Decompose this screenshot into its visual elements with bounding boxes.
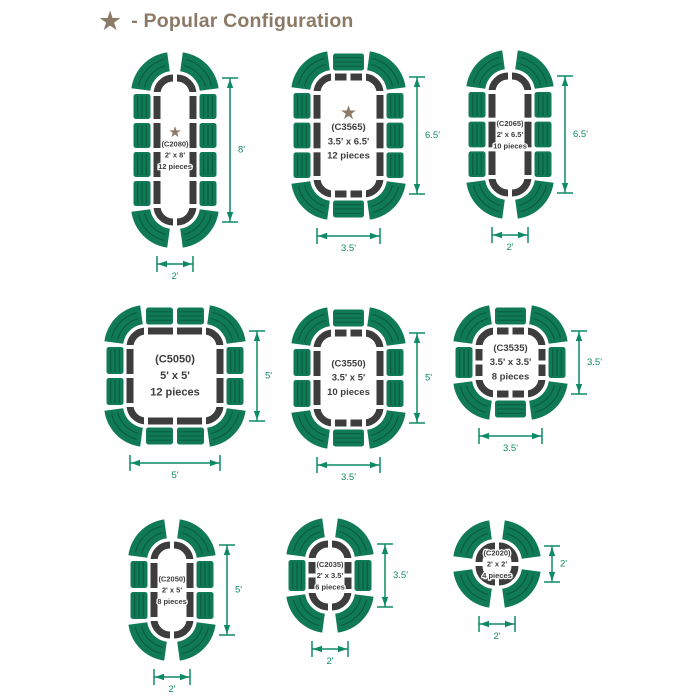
config-size: 2' x 6.5' <box>497 130 524 139</box>
arrowhead-icon <box>413 78 419 87</box>
table-segment-gap <box>173 326 177 337</box>
table-segment-gap <box>202 326 206 337</box>
height-dimension-label: 6.5' <box>425 130 440 141</box>
table-segment-gap <box>170 540 174 551</box>
arrowhead-icon <box>254 411 260 420</box>
config-size: 3.5' x 6.5' <box>327 136 369 147</box>
width-dimension-label: 2' <box>506 242 513 253</box>
table-segment-gap <box>346 418 350 429</box>
table-segment-gap <box>493 388 497 399</box>
table-segment-gap <box>185 617 196 621</box>
table-segment-gap <box>188 204 199 208</box>
popular-configuration-sheet: ★ - Popular Configuration ★(C2080)2' x 8… <box>0 0 700 700</box>
table-segment-gap <box>524 325 528 336</box>
table-segment-gap <box>343 558 354 562</box>
table-segment-gap <box>362 188 366 199</box>
table-segment-gap <box>311 148 322 152</box>
arrowhead-icon <box>318 462 327 468</box>
configuration-C3550: (C3550)3.5' x 5'10 pieces5'3.5' <box>267 283 450 489</box>
config-id: (C2065) <box>496 118 524 127</box>
table-segment-gap <box>149 588 160 592</box>
table-segment-gap <box>125 403 136 407</box>
config-pieces: 12 pieces <box>158 162 192 171</box>
table-segment-gap <box>170 630 174 641</box>
configuration-C2035: (C2035)2' x 3.5'6 pieces3.5'2' <box>262 494 418 673</box>
config-id: (C3565) <box>331 122 365 133</box>
arrowhead-icon <box>158 261 167 267</box>
arrowhead-icon <box>413 413 419 422</box>
table-segment-gap <box>144 326 148 337</box>
table-segment-gap <box>173 217 177 228</box>
arrowhead-icon <box>562 183 568 192</box>
table-segment-gap <box>328 538 332 549</box>
config-id: (C2020) <box>483 548 511 557</box>
arrowhead-icon <box>227 79 233 88</box>
table-segment-gap <box>311 91 322 95</box>
table-segment-gap <box>508 187 512 198</box>
config-id: (C2080) <box>161 139 189 148</box>
table-segment-gap <box>374 148 385 152</box>
table-segment-gap <box>152 177 163 181</box>
table-segment-gap <box>152 92 163 96</box>
table-segment-gap <box>362 328 366 339</box>
table-segment-gap <box>185 588 196 592</box>
height-dimension-label: 5' <box>235 585 242 596</box>
arrowhead-icon <box>370 232 379 238</box>
config-pieces: 8 pieces <box>491 371 529 382</box>
table-segment-gap <box>173 73 177 84</box>
config-id: (C2035) <box>316 559 344 568</box>
width-dimension-label: 3.5' <box>502 443 517 454</box>
table-segment-gap <box>374 91 385 95</box>
config-pieces: 10 pieces <box>327 387 370 398</box>
table-segment-gap <box>311 376 322 380</box>
height-dimension-label: 2' <box>560 559 567 570</box>
table-segment-gap <box>346 71 350 82</box>
width-dimension-label: 3.5' <box>340 472 355 483</box>
popular-star-icon: ★ <box>339 102 356 123</box>
width-dimension-label: 3.5' <box>340 243 355 254</box>
arrowhead-icon <box>210 460 219 466</box>
config-size: 3.5' x 5' <box>331 373 365 384</box>
configuration-C2080: ★(C2080)2' x 8'12 pieces8'2' <box>107 28 263 288</box>
config-id: (C3535) <box>493 342 527 353</box>
table-segment-gap <box>346 188 350 199</box>
width-dimension-label: 2' <box>326 656 333 667</box>
table-segment-gap <box>188 119 199 123</box>
config-id: (C2050) <box>158 574 186 583</box>
configuration-C3565: ★(C3565)3.5' x 6.5'12 pieces6.5'3.5' <box>267 27 450 260</box>
width-dimension-label: 2' <box>168 684 175 695</box>
height-dimension-label: 3.5' <box>587 357 602 368</box>
configuration-C2020: (C2020)2' x 2'4 pieces2'2' <box>429 496 585 648</box>
config-pieces: 10 pieces <box>493 141 527 150</box>
table-segment-gap <box>523 117 534 121</box>
height-dimension-label: 3.5' <box>393 570 408 581</box>
table-segment-gap <box>508 388 512 399</box>
table-segment-gap <box>473 376 484 380</box>
table-segment-gap <box>508 70 512 81</box>
table-segment-gap <box>311 118 322 122</box>
table-segment-gap <box>152 148 163 152</box>
table-segment-gap <box>473 345 484 349</box>
config-size: 2' x 2' <box>487 560 507 569</box>
table-segment-gap <box>215 403 226 407</box>
table-segment-gap <box>374 347 385 351</box>
table-segment-gap <box>524 388 528 399</box>
table-segment-gap <box>487 175 498 179</box>
config-size: 5' x 5' <box>160 370 190 382</box>
table-segment-gap <box>473 360 484 364</box>
arrowhead-icon <box>518 231 527 237</box>
table-segment-gap <box>331 71 335 82</box>
arrowhead-icon <box>413 184 419 193</box>
arrowhead-icon <box>493 231 502 237</box>
table-segment-gap <box>343 573 354 577</box>
configuration-diagram: (C2050)2' x 5'8 pieces5'2' <box>104 495 260 700</box>
table-segment-gap <box>523 90 534 94</box>
table-segment-gap <box>215 374 226 378</box>
table-segment-gap <box>125 374 136 378</box>
config-pieces: 6 pieces <box>315 582 345 591</box>
table-segment-gap <box>215 345 226 349</box>
table-segment-gap <box>311 347 322 351</box>
arrowhead-icon <box>131 460 140 466</box>
table-segment-gap <box>328 601 332 612</box>
table-segment-gap <box>536 360 547 364</box>
table-segment-gap <box>185 559 196 563</box>
arrowhead-icon <box>318 232 327 238</box>
table-segment-gap <box>144 416 148 427</box>
arrowhead-icon <box>382 545 388 554</box>
arrowhead-icon <box>227 212 233 221</box>
table-segment-gap <box>536 345 547 349</box>
arrowhead-icon <box>180 674 189 680</box>
table-segment-gap <box>188 92 199 96</box>
configuration-diagram: ★(C2080)2' x 8'12 pieces8'2' <box>107 28 263 288</box>
configuration-diagram: (C5050)5' x 5'12 pieces5'5' <box>80 281 290 487</box>
arrowhead-icon <box>562 77 568 86</box>
table-segment-gap <box>374 376 385 380</box>
height-dimension-label: 6.5' <box>573 129 588 140</box>
arrowhead-icon <box>575 332 581 341</box>
configuration-diagram: (C2020)2' x 2'4 pieces2'2' <box>429 496 585 648</box>
config-id: (C5050) <box>155 354 195 366</box>
arrowhead-icon <box>224 625 230 634</box>
table-segment-gap <box>149 617 160 621</box>
arrowhead-icon <box>532 432 541 438</box>
table-segment-gap <box>311 176 322 180</box>
arrowhead-icon <box>382 597 388 606</box>
table-segment-gap <box>331 418 335 429</box>
table-segment-gap <box>149 559 160 563</box>
table-segment-gap <box>474 562 485 566</box>
config-size: 2' x 8' <box>165 151 185 160</box>
arrowhead-icon <box>370 462 379 468</box>
arrowhead-icon <box>480 621 489 627</box>
config-size: 3.5' x 3.5' <box>489 357 531 368</box>
table-segment-gap <box>536 376 547 380</box>
width-dimension-label: 5' <box>171 470 178 481</box>
table-segment-gap <box>508 325 512 336</box>
configuration-diagram: (C3535)3.5' x 3.5'8 pieces3.5'3.5' <box>429 281 612 460</box>
config-pieces: 8 pieces <box>157 597 187 606</box>
table-segment-gap <box>152 204 163 208</box>
configuration-diagram: (C3550)3.5' x 5'10 pieces5'3.5' <box>267 283 450 489</box>
arrowhead-icon <box>549 547 555 556</box>
table-segment-gap <box>362 71 366 82</box>
arrowhead-icon <box>313 645 322 651</box>
table-segment-gap <box>523 175 534 179</box>
table-segment-gap <box>510 562 521 566</box>
config-id: (C3550) <box>331 358 365 369</box>
arrowhead-icon <box>575 384 581 393</box>
table-segment-gap <box>346 328 350 339</box>
table-segment-gap <box>362 418 366 429</box>
table-segment-gap <box>188 177 199 181</box>
arrowhead-icon <box>224 546 230 555</box>
config-pieces: 12 pieces <box>327 150 370 161</box>
table-segment-gap <box>331 328 335 339</box>
arrowhead-icon <box>254 332 260 341</box>
configuration-C3535: (C3535)3.5' x 3.5'8 pieces3.5'3.5' <box>429 281 612 460</box>
height-dimension-label: 8' <box>238 145 245 156</box>
config-size: 2' x 3.5' <box>317 571 344 580</box>
configuration-diagram: ★(C3565)3.5' x 6.5'12 pieces6.5'3.5' <box>267 27 450 260</box>
arrowhead-icon <box>505 621 514 627</box>
configuration-C5050: (C5050)5' x 5'12 pieces5'5' <box>80 281 290 487</box>
arrowhead-icon <box>480 432 489 438</box>
arrowhead-icon <box>549 572 555 581</box>
table-segment-gap <box>152 119 163 123</box>
config-pieces: 4 pieces <box>482 571 512 580</box>
table-segment-gap <box>331 188 335 199</box>
table-segment-gap <box>202 416 206 427</box>
width-dimension-label: 2' <box>493 631 500 642</box>
config-size: 2' x 5' <box>162 586 182 595</box>
arrowhead-icon <box>413 334 419 343</box>
configuration-diagram: (C2065)2' x 6.5'10 pieces6.5'2' <box>442 26 598 259</box>
table-segment-gap <box>374 118 385 122</box>
configuration-C2065: (C2065)2' x 6.5'10 pieces6.5'2' <box>442 26 598 259</box>
table-segment-gap <box>374 405 385 409</box>
configuration-diagram: (C2035)2' x 3.5'6 pieces3.5'2' <box>262 494 418 673</box>
table-segment-gap <box>374 176 385 180</box>
table-segment-gap <box>311 405 322 409</box>
arrowhead-icon <box>155 674 164 680</box>
table-segment-gap <box>487 90 498 94</box>
table-segment-gap <box>493 325 497 336</box>
arrowhead-icon <box>183 261 192 267</box>
table-segment-gap <box>188 148 199 152</box>
config-pieces: 12 pieces <box>150 387 200 399</box>
arrowhead-icon <box>338 645 347 651</box>
configuration-C2050: (C2050)2' x 5'8 pieces5'2' <box>104 495 260 700</box>
table-segment-gap <box>125 345 136 349</box>
table-segment-gap <box>173 416 177 427</box>
